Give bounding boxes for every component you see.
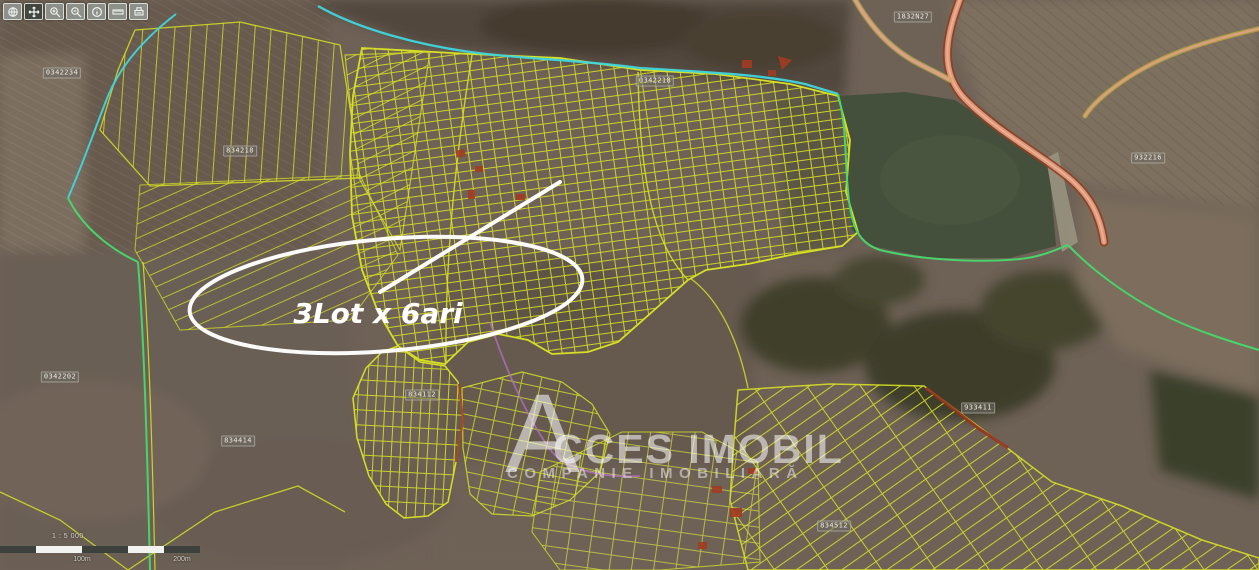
scale-segment [164, 546, 200, 553]
scale-segment [0, 546, 36, 553]
scale-label-100m: 100m [73, 556, 91, 563]
map-viewer: 3Lot x 6ari 0342234 834218 0342218 1832N… [0, 0, 1259, 570]
overview-button[interactable] [3, 3, 22, 20]
print-button[interactable] [129, 3, 148, 20]
scale-segment [82, 546, 128, 553]
annotation-label: 3Lot x 6ari [293, 297, 463, 330]
zoom-out-button[interactable] [66, 3, 85, 20]
scale-segments [0, 546, 200, 553]
parcel-label: 834218 [223, 146, 257, 157]
zoom-in-icon [49, 6, 61, 18]
parcel-label: 1832N27 [894, 12, 932, 23]
parcel-label: 0342234 [43, 68, 81, 79]
parcel-label: 834414 [221, 436, 255, 447]
parcel-label: 933411 [961, 403, 995, 414]
zoom-in-button[interactable] [45, 3, 64, 20]
parcel-label: 0342218 [636, 76, 674, 87]
pan-button[interactable] [24, 3, 43, 20]
scale-ratio: 1 : 5 000 [52, 533, 84, 540]
map-canvas[interactable]: 3Lot x 6ari [0, 0, 1259, 570]
scale-label-200m: 200m [173, 556, 191, 563]
zoom-out-icon [70, 6, 82, 18]
print-icon [133, 6, 145, 18]
parcel-label: 834512 [817, 521, 851, 532]
info-icon [91, 6, 103, 18]
map-toolbar [3, 3, 148, 20]
parcel-label: 932216 [1131, 153, 1165, 164]
parcel-label: 834112 [405, 390, 439, 401]
measure-button[interactable] [108, 3, 127, 20]
scale-segment [128, 546, 164, 553]
scale-segment [36, 546, 82, 553]
measure-icon [112, 6, 124, 18]
parcel-label: 0342202 [41, 372, 79, 383]
identify-button[interactable] [87, 3, 106, 20]
globe-icon [7, 6, 19, 18]
pan-icon [28, 6, 40, 18]
